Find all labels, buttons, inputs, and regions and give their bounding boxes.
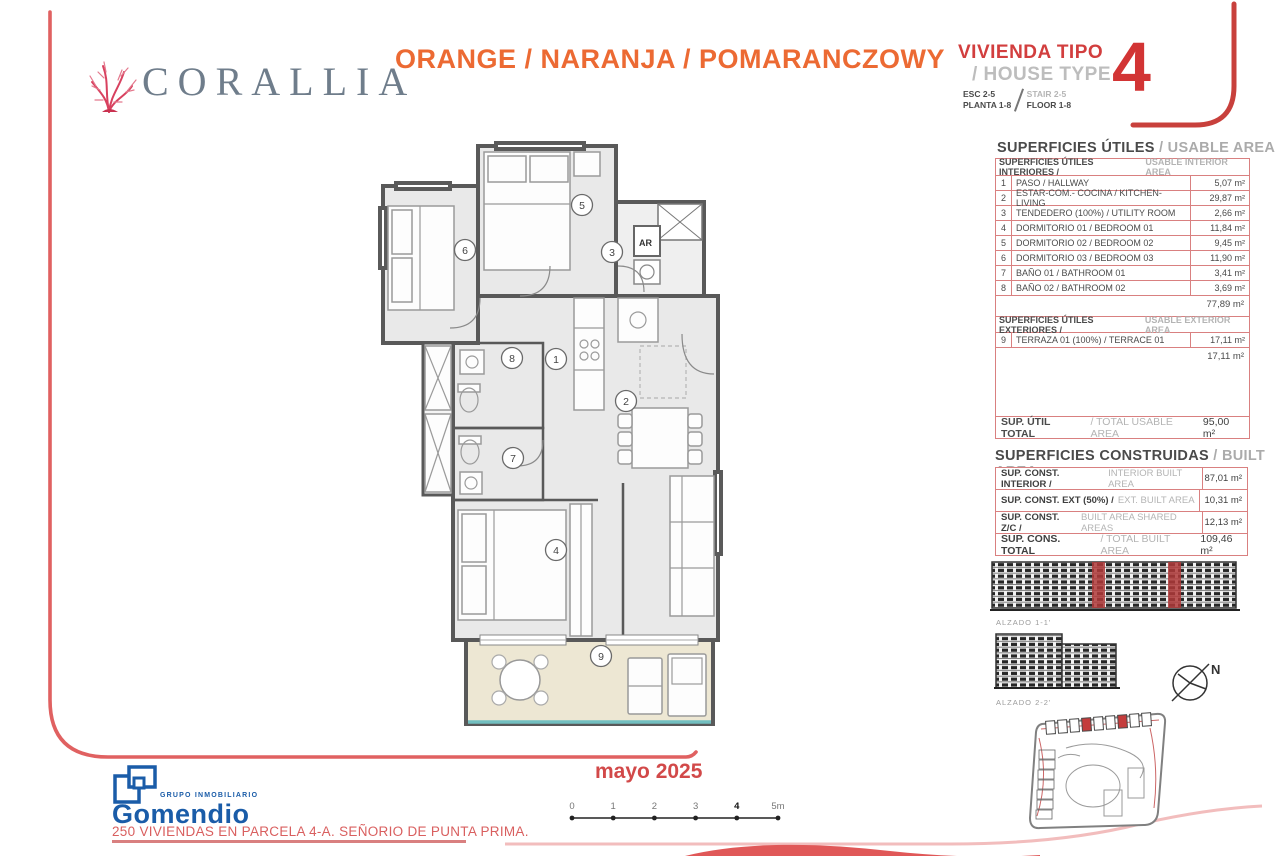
usable-area-table: SUPERFICIES ÚTILES INTERIORES / USABLE I… bbox=[995, 158, 1250, 439]
scale-bar: 0 1 2 3 4 5m bbox=[562, 796, 790, 828]
room-number-badge: 1 bbox=[553, 354, 559, 366]
coral-icon bbox=[78, 50, 140, 116]
alzado-2-label: ALZADO 2-2' bbox=[996, 698, 1051, 707]
esc-label: ESC 2-5 bbox=[963, 89, 1011, 100]
table-row: 2ESTAR-COM.- COCINA / KITCHEN-LIVING29,8… bbox=[996, 191, 1249, 206]
table-row: 3TENDEDERO (100%) / UTILITY ROOM2,66 m² bbox=[996, 206, 1249, 221]
built-total-row: SUP. CONS. TOTAL/ TOTAL BUILT AREA109,46… bbox=[995, 533, 1248, 556]
elevation-alzado-2 bbox=[992, 630, 1122, 694]
room-number-badge: 4 bbox=[553, 545, 559, 557]
table-row: 5DORMITORIO 02 / BEDROOM 029,45 m² bbox=[996, 236, 1249, 251]
plan-sheet: CORALLIA ORANGE / NARANJA / POMARANCZOWY… bbox=[0, 0, 1280, 856]
room-number-badge: 3 bbox=[609, 247, 615, 259]
ar-label: AR bbox=[639, 238, 652, 248]
interior-subtotal: 77,89 m² bbox=[996, 296, 1249, 311]
room-number-badge: 2 bbox=[623, 396, 629, 408]
slash-divider bbox=[1014, 88, 1024, 111]
elevation-alzado-1 bbox=[988, 556, 1242, 616]
brand-name: CORALLIA bbox=[142, 58, 416, 105]
gomendio-group-label: GRUPO INMOBILIARIO bbox=[160, 792, 258, 799]
project-line: 250 VIVIENDAS EN PARCELA 4-A. SEÑORIO DE… bbox=[112, 824, 529, 839]
house-type-number: 4 bbox=[1112, 32, 1151, 102]
house-type-title-en: / HOUSE TYPE bbox=[972, 64, 1111, 86]
stair-label: STAIR 2-5 bbox=[1027, 89, 1071, 100]
corallia-logo: CORALLIA bbox=[78, 50, 140, 121]
room-number-badge: 6 bbox=[462, 245, 468, 257]
north-letter: N bbox=[1211, 662, 1220, 677]
scale-tick-label: 1 bbox=[611, 801, 616, 812]
house-type-title-es: VIVIENDA TIPO bbox=[958, 42, 1103, 64]
room-number-badge: 9 bbox=[598, 651, 604, 663]
north-arrow-icon: N bbox=[1164, 654, 1224, 710]
scale-tick-label: 5m bbox=[771, 801, 784, 812]
scale-tick-label: 3 bbox=[693, 801, 698, 812]
usable-area-title: SUPERFICIES ÚTILES / USABLE AREA bbox=[997, 140, 1275, 156]
table-row: SUP. CONST. INTERIOR /INTERIOR BUILT ARE… bbox=[995, 467, 1248, 490]
table-row: 4DORMITORIO 01 / BEDROOM 0111,84 m² bbox=[996, 221, 1249, 236]
floor-label: FLOOR 1-8 bbox=[1027, 100, 1071, 111]
interior-header: SUPERFICIES ÚTILES INTERIORES / USABLE I… bbox=[996, 159, 1249, 176]
room-number-badge: 8 bbox=[509, 353, 515, 365]
table-row: SUP. CONST. Z/C /BUILT AREA SHARED AREAS… bbox=[995, 511, 1248, 534]
table-row: SUP. CONST. EXT (50%) /EXT. BUILT AREA10… bbox=[995, 489, 1248, 512]
site-plan bbox=[1008, 708, 1183, 844]
table-row: 7BAÑO 01 / BATHROOM 013,41 m² bbox=[996, 266, 1249, 281]
built-area-table: SUP. CONST. INTERIOR /INTERIOR BUILT ARE… bbox=[995, 468, 1248, 556]
table-row: 9TERRAZA 01 (100%) / TERRACE 0117,11 m² bbox=[996, 333, 1249, 348]
floor-plan: AR bbox=[368, 138, 768, 733]
scale-tick-label: 2 bbox=[652, 801, 657, 812]
scale-tick-label: 4 bbox=[734, 801, 740, 812]
table-row: 6DORMITORIO 03 / BEDROOM 0311,90 m² bbox=[996, 251, 1249, 266]
scale-tick-label: 0 bbox=[569, 801, 574, 812]
planta-label: PLANTA 1-8 bbox=[963, 100, 1011, 111]
date-label: mayo 2025 bbox=[595, 760, 702, 784]
alzado-1-label: ALZADO 1-1' bbox=[996, 618, 1051, 627]
exterior-header: SUPERFICIES ÚTILES EXTERIORES / USABLE E… bbox=[996, 316, 1249, 333]
exterior-subtotal: 17,11 m² bbox=[996, 348, 1249, 363]
footer-divider bbox=[112, 840, 466, 843]
house-type-floors: ESC 2-5 PLANTA 1-8 STAIR 2-5 FLOOR 1-8 bbox=[963, 88, 1071, 112]
table-row: 8BAÑO 02 / BATHROOM 023,69 m² bbox=[996, 281, 1249, 296]
room-number-badge: 7 bbox=[510, 453, 516, 465]
page-title: ORANGE / NARANJA / POMARANCZOWY bbox=[395, 44, 945, 75]
usable-total-row: SUP. ÚTIL TOTAL / TOTAL USABLE AREA 95,0… bbox=[996, 416, 1249, 438]
room-number-badge: 5 bbox=[579, 200, 585, 212]
